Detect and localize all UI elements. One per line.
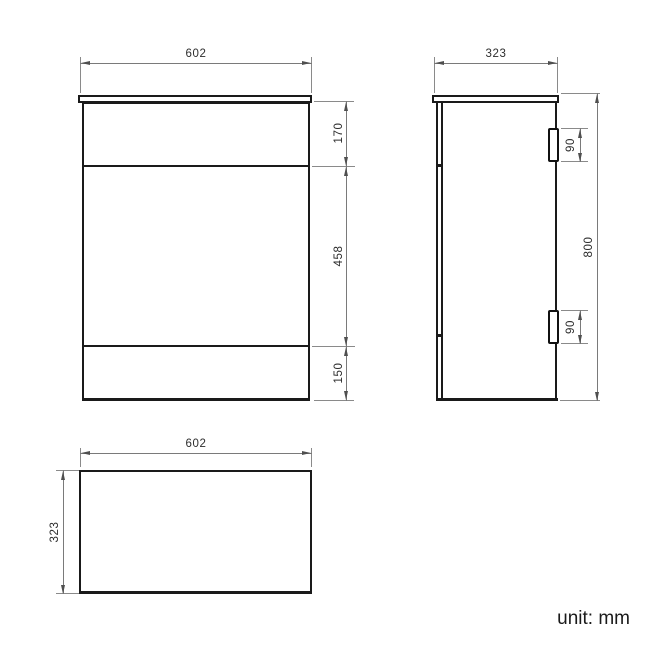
- dim-arrow-icon: [435, 61, 444, 65]
- plan-width-label: 602: [80, 437, 312, 451]
- extension-line: [314, 400, 354, 401]
- side-height-label: 800: [582, 227, 596, 267]
- dim-arrow-icon: [578, 335, 582, 344]
- extension-line: [314, 101, 354, 102]
- extension-line: [560, 400, 600, 401]
- hinge-bottom: [548, 310, 559, 344]
- dim-arrow-icon: [81, 61, 90, 65]
- side-depth-label: 323: [434, 47, 558, 61]
- unit-note: unit: mm: [540, 608, 630, 630]
- hinge-top-label: 90: [564, 125, 578, 165]
- panel-divider-line: [83, 165, 309, 167]
- countertop-side: [432, 95, 559, 103]
- extension-line: [56, 470, 79, 471]
- dim-arrow-icon: [61, 585, 65, 594]
- dim-arrow-icon: [344, 337, 348, 346]
- dimension-line-height: [597, 93, 598, 401]
- back-panel-edge: [436, 103, 443, 400]
- dim-arrow-icon: [81, 451, 90, 455]
- front-bottom-section-label: 150: [332, 353, 346, 393]
- plinth-divider-line: [83, 345, 309, 347]
- dim-arrow-icon: [302, 451, 311, 455]
- dimension-line-plan-depth: [63, 470, 64, 594]
- dim-arrow-icon: [302, 61, 311, 65]
- front-top-section-label: 170: [332, 113, 346, 153]
- dim-arrow-icon: [595, 94, 599, 103]
- dim-arrow-icon: [61, 471, 65, 480]
- dim-arrow-icon: [344, 167, 348, 176]
- dimension-line-depth: [434, 63, 558, 64]
- back-panel-joint: [436, 164, 443, 167]
- dim-arrow-icon: [344, 102, 348, 111]
- hinge-bottom-label: 90: [564, 307, 578, 347]
- back-panel-joint: [436, 334, 443, 337]
- front-width-label: 602: [80, 47, 312, 61]
- extension-line: [312, 346, 355, 347]
- extension-line: [312, 166, 355, 167]
- extension-line: [56, 593, 79, 594]
- front-middle-section-label: 458: [332, 236, 346, 276]
- plan-outline: [79, 470, 312, 594]
- technical-drawing: 602 170 458 150 323: [0, 0, 650, 650]
- dimension-line-sections: [346, 101, 347, 401]
- dim-arrow-icon: [578, 311, 582, 320]
- dim-arrow-icon: [344, 157, 348, 166]
- cabinet-side-bottom-edge: [436, 398, 558, 401]
- dimension-line-width: [80, 63, 312, 64]
- hinge-top: [548, 128, 559, 162]
- dim-arrow-icon: [595, 392, 599, 401]
- dim-arrow-icon: [578, 153, 582, 162]
- dimension-line-plan-width: [80, 453, 312, 454]
- cabinet-front-body: [82, 102, 310, 401]
- dim-arrow-icon: [578, 129, 582, 138]
- dim-arrow-icon: [548, 61, 557, 65]
- plan-depth-label: 323: [48, 512, 62, 552]
